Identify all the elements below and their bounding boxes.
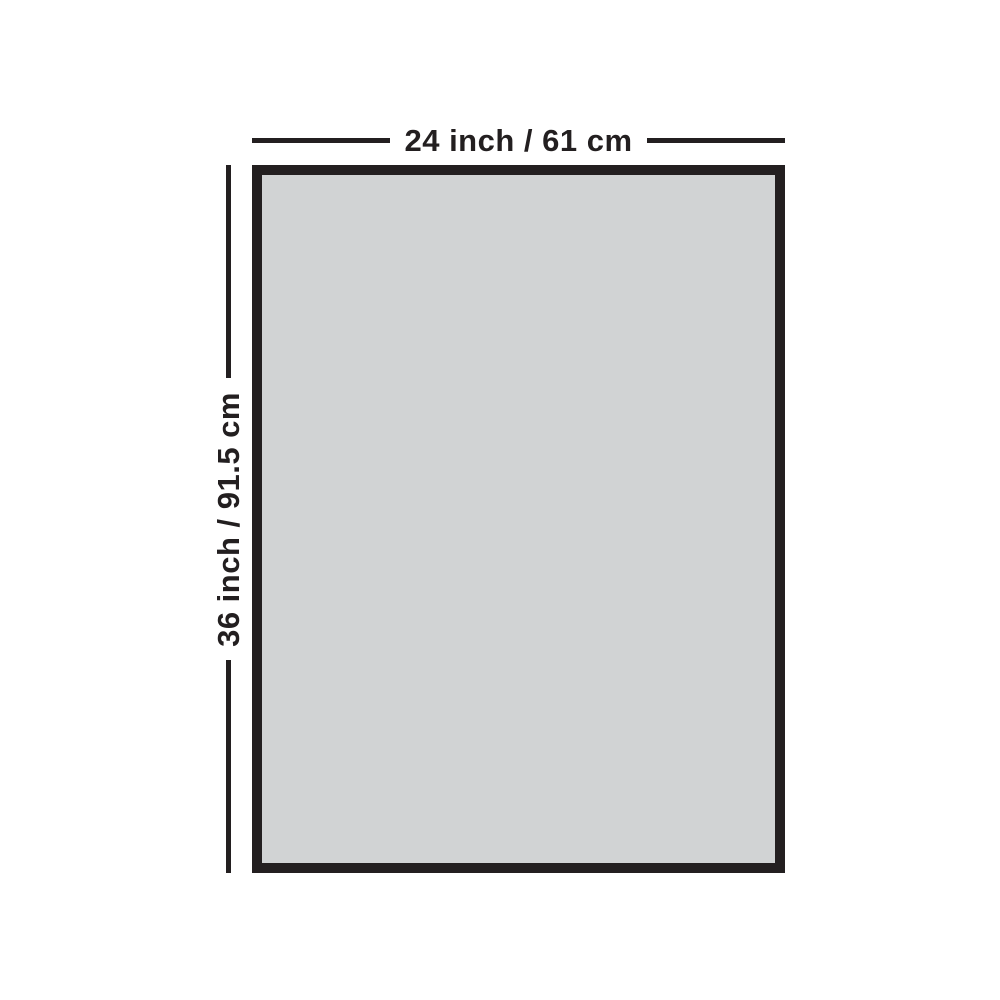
width-dimension: 24 inch / 61 cm — [252, 122, 785, 159]
height-dimension-line-bottom — [226, 660, 231, 873]
height-dimension: 36 inch / 91.5 cm — [209, 165, 248, 873]
width-dimension-line-left — [252, 138, 390, 143]
width-dimension-line-right — [647, 138, 785, 143]
height-dimension-line-top — [226, 165, 231, 378]
height-dimension-label: 36 inch / 91.5 cm — [213, 392, 244, 647]
width-dimension-label: 24 inch / 61 cm — [404, 125, 632, 156]
product-rectangle — [252, 165, 785, 873]
dimension-diagram: 24 inch / 61 cm 36 inch / 91.5 cm — [0, 0, 1000, 1000]
